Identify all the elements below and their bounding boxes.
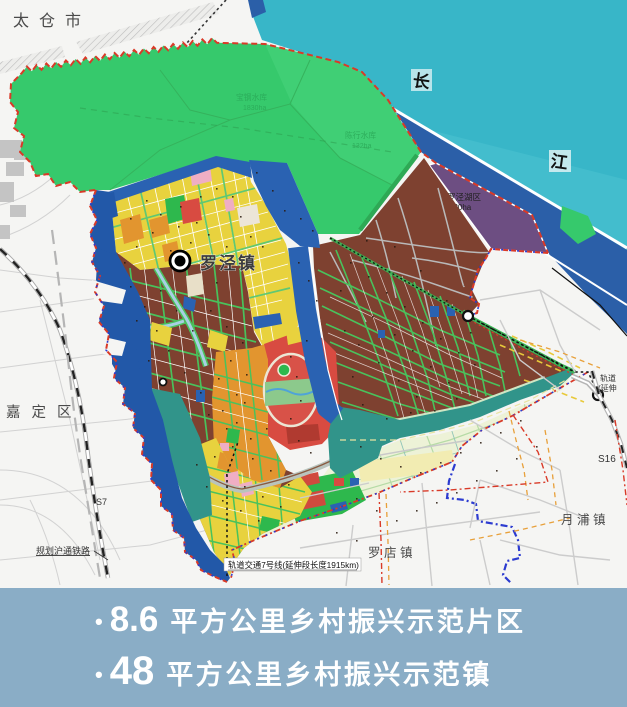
svg-text:罗泾镇: 罗泾镇: [200, 253, 257, 273]
svg-text:嘉定区: 嘉定区: [6, 404, 83, 421]
svg-text:太仓市: 太仓市: [13, 12, 91, 30]
svg-text:罗店镇: 罗店镇: [368, 546, 416, 560]
svg-text:宝钢水库: 宝钢水库: [236, 92, 267, 102]
svg-text:月浦镇: 月浦镇: [561, 513, 609, 527]
svg-text:S16: S16: [598, 454, 616, 465]
svg-text:规划沪通铁路: 规划沪通铁路: [36, 545, 90, 556]
svg-text:(延伸: (延伸: [598, 383, 617, 393]
svg-text:陈行水库: 陈行水库: [345, 130, 376, 140]
svg-text:1830ha: 1830ha: [243, 105, 266, 112]
svg-text:轨道交通7号线(延伸段长度1915km): 轨道交通7号线(延伸段长度1915km): [228, 560, 359, 570]
svg-text:轨道: 轨道: [600, 373, 616, 383]
svg-text:江: 江: [549, 152, 568, 173]
svg-text:S7: S7: [96, 497, 107, 507]
svg-text:132ha: 132ha: [352, 143, 372, 150]
